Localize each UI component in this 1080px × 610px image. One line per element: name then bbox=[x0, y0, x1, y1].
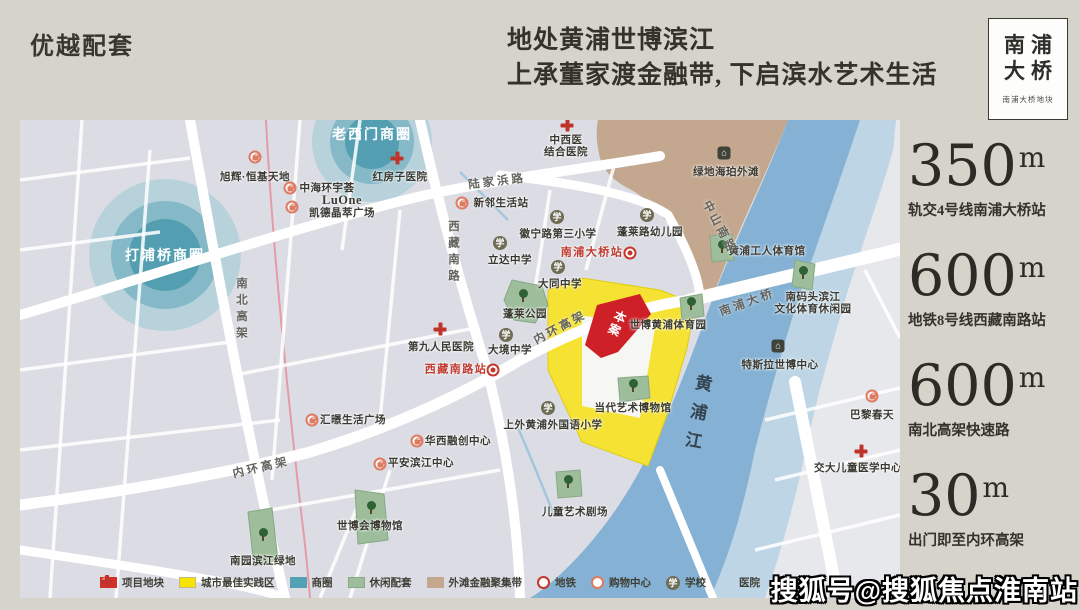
park-icon bbox=[257, 528, 269, 542]
poi-label: 儿童艺术剧场 bbox=[542, 506, 608, 518]
hospital-icon bbox=[561, 120, 574, 132]
poi-name: 立达中学 bbox=[488, 254, 532, 266]
stat-block: 600m地铁8号线西藏南路站 bbox=[908, 248, 1080, 333]
brand-subtitle: 南浦大桥地块 bbox=[989, 94, 1067, 105]
map-legend: 项目地块城市最佳实践区商圈休闲配套外滩金融聚集带地铁购物中心学学校医院⌂住宅区 bbox=[100, 575, 825, 590]
poi-label: LuOne凯德晶萃广场 bbox=[309, 193, 375, 219]
road-label: 南北高架 bbox=[233, 277, 249, 343]
metro-icon bbox=[487, 364, 500, 377]
poi-label: 世博黄浦体育园 bbox=[630, 319, 707, 331]
shopping-icon bbox=[411, 435, 424, 448]
school-icon: 学 bbox=[499, 328, 513, 342]
poi-label: 南园滨江绿地 bbox=[230, 555, 296, 567]
legend-label: 项目地块 bbox=[122, 575, 164, 590]
stat-value: 600m bbox=[908, 358, 1080, 415]
shopping-icon bbox=[306, 414, 319, 427]
stat-block: 30m出门即至内环高架 bbox=[908, 468, 1080, 553]
poi-name: 中西医 bbox=[544, 134, 588, 146]
stat-label: 南北高架快速路 bbox=[908, 419, 1080, 440]
poi-label: 蓬莱公园 bbox=[503, 308, 547, 320]
legend-item: 学学校 bbox=[666, 575, 706, 590]
poi-label: 南码头滨江文化体育休闲园 bbox=[775, 291, 852, 315]
poi-name: 蓬莱路幼儿园 bbox=[617, 226, 683, 238]
stat-unit: m bbox=[1019, 251, 1046, 284]
park-icon bbox=[365, 501, 377, 515]
legend-item: 医院 bbox=[721, 575, 760, 590]
poi-name: 红房子医院 bbox=[373, 171, 428, 183]
poi-name: 平安滨江中心 bbox=[388, 457, 454, 469]
shopping-icon bbox=[286, 201, 299, 214]
poi-label: 徽宁路第三小学 bbox=[520, 228, 597, 240]
poi-name: 南园滨江绿地 bbox=[230, 555, 296, 567]
park-icon bbox=[562, 475, 574, 489]
legend-label: 购物中心 bbox=[609, 575, 651, 590]
poi-name: 南浦大桥站 bbox=[561, 247, 624, 260]
legend-metro-icon bbox=[537, 576, 550, 589]
headline-line2: 上承董家渡金融带, 下启滨水艺术生活 bbox=[507, 59, 938, 94]
poi-name: 特斯拉世博中心 bbox=[742, 359, 819, 371]
poi-label: 新邻生活站 bbox=[474, 197, 529, 209]
legend-practice-icon bbox=[179, 577, 196, 588]
poi-name: 第九人民医院 bbox=[408, 341, 474, 353]
legend-shopping-icon bbox=[591, 576, 604, 589]
shopping-icon bbox=[866, 390, 879, 403]
stat-block: 600m南北高架快速路 bbox=[908, 358, 1080, 443]
poi-label: 中西医结合医院 bbox=[544, 134, 588, 158]
legend-school-icon: 学 bbox=[666, 576, 680, 590]
stat-value: 600m bbox=[908, 248, 1080, 305]
poi-label: 汇暻生活广场 bbox=[320, 414, 386, 426]
stat-number: 600 bbox=[908, 243, 1017, 309]
poi-label: 巴黎春天 bbox=[850, 409, 894, 421]
school-icon: 学 bbox=[493, 236, 507, 250]
school-icon: 学 bbox=[550, 210, 564, 224]
brand-name-line2: 大桥 bbox=[995, 58, 1067, 84]
poi-label: 交大儿童医学中心 bbox=[814, 462, 900, 474]
legend-label: 休闲配套 bbox=[370, 575, 412, 590]
poi-name: 当代艺术博物馆 bbox=[595, 402, 672, 414]
legend-label: 城市最佳实践区 bbox=[201, 575, 275, 590]
brand-box: 南浦 大桥 南浦大桥地块 bbox=[988, 18, 1068, 120]
stat-unit: m bbox=[983, 471, 1010, 504]
poi-label: 旭辉·恒基天地 bbox=[220, 171, 290, 183]
park-icon bbox=[627, 379, 639, 393]
brand-name-line1: 南浦 bbox=[995, 32, 1067, 58]
stat-value: 30m bbox=[908, 468, 1080, 525]
school-icon: 学 bbox=[551, 260, 565, 274]
map: 旭辉·恒基天地中海环宇荟LuOne凯德晶萃广场新邻生活站汇暻生活广场华西融创中心… bbox=[20, 120, 900, 598]
poi-label: 蓬莱路幼儿园 bbox=[617, 226, 683, 238]
road-label: 西藏南路 bbox=[445, 220, 461, 286]
poi-name: 绿地海珀外滩 bbox=[693, 166, 759, 178]
stat-number: 30 bbox=[908, 463, 981, 529]
poi-name: 西藏南路站 bbox=[425, 364, 488, 377]
poi-name: 上外黄浦外国语小学 bbox=[504, 419, 603, 431]
poi-label: 大同中学 bbox=[538, 278, 582, 290]
poi-name: 交大儿童医学中心 bbox=[814, 462, 900, 474]
poi-label: 南浦大桥站 bbox=[561, 247, 624, 260]
poi-name-line2: 结合医院 bbox=[544, 146, 588, 158]
shopping-icon bbox=[456, 197, 469, 210]
poi-name: 华西融创中心 bbox=[425, 435, 491, 447]
poi-label: 第九人民医院 bbox=[408, 341, 474, 353]
metro-icon bbox=[624, 247, 637, 260]
poi-label: 西藏南路站 bbox=[425, 364, 488, 377]
poi-name: 汇暻生活广场 bbox=[320, 414, 386, 426]
page-title: 优越配套 bbox=[30, 26, 134, 61]
legend-bund-icon bbox=[427, 577, 444, 588]
headline-line1: 地处黄浦世博滨江 bbox=[507, 24, 938, 59]
legend-item: 外滩金融聚集带 bbox=[427, 575, 523, 590]
road-label: 南浦大桥 bbox=[717, 285, 777, 320]
hospital-icon bbox=[855, 445, 868, 458]
poi-name: 大同中学 bbox=[538, 278, 582, 290]
poi-name: 巴黎春天 bbox=[850, 409, 894, 421]
legend-item: 商圈 bbox=[290, 575, 333, 590]
school-icon: 学 bbox=[541, 401, 555, 415]
legend-item: 休闲配套 bbox=[348, 575, 412, 590]
poi-name: LuOne bbox=[309, 193, 375, 207]
park-icon bbox=[685, 297, 697, 311]
building-icon: ⌂ bbox=[718, 147, 731, 160]
stat-unit: m bbox=[1019, 361, 1046, 394]
legend-label: 外滩金融聚集带 bbox=[449, 575, 523, 590]
stat-label: 轨交4号线南浦大桥站 bbox=[908, 199, 1080, 220]
legend-item: 购物中心 bbox=[591, 575, 651, 590]
poi-label: 世博会博物馆 bbox=[337, 520, 403, 532]
shopping-icon bbox=[284, 182, 297, 195]
project-plot-label: 本案 bbox=[604, 308, 631, 340]
poi-label: 红房子医院 bbox=[373, 171, 428, 183]
poi-name: 大境中学 bbox=[488, 344, 532, 356]
road-label: 陆家浜路 bbox=[467, 170, 527, 193]
stat-label: 地铁8号线西藏南路站 bbox=[908, 309, 1080, 330]
poi-name: 儿童艺术剧场 bbox=[542, 506, 608, 518]
watermark: 搜狐号@搜狐焦点淮南站 bbox=[771, 569, 1078, 608]
park-icon bbox=[797, 266, 809, 280]
shopping-icon bbox=[374, 458, 387, 471]
stat-number: 350 bbox=[908, 133, 1017, 199]
poi-name: 世博黄浦体育园 bbox=[630, 319, 707, 331]
poi-label: 绿地海珀外滩 bbox=[693, 166, 759, 178]
poi-name: 新邻生活站 bbox=[474, 197, 529, 209]
legend-label: 学校 bbox=[685, 575, 706, 590]
stats-column: 350m轨交4号线南浦大桥站600m地铁8号线西藏南路站600m南北高架快速路3… bbox=[908, 138, 1080, 553]
legend-label: 医院 bbox=[739, 575, 760, 590]
poi-label: 立达中学 bbox=[488, 254, 532, 266]
legend-label: 商圈 bbox=[312, 575, 333, 590]
poi-layer: 旭辉·恒基天地中海环宇荟LuOne凯德晶萃广场新邻生活站汇暻生活广场华西融创中心… bbox=[20, 120, 900, 598]
stat-block: 350m轨交4号线南浦大桥站 bbox=[908, 138, 1080, 223]
legend-item: 地铁 bbox=[537, 575, 576, 590]
road-label: 内环高架 bbox=[231, 453, 291, 482]
stat-number: 600 bbox=[908, 353, 1017, 419]
poi-label: 当代艺术博物馆 bbox=[595, 402, 672, 414]
legend-hospital-icon bbox=[721, 576, 734, 589]
hospital-icon bbox=[391, 152, 404, 165]
poi-name-line2: 文化体育休闲园 bbox=[775, 303, 852, 315]
poi-name: 旭辉·恒基天地 bbox=[220, 171, 290, 183]
poi-label: 大境中学 bbox=[488, 344, 532, 356]
poi-label: 上外黄浦外国语小学 bbox=[504, 419, 603, 431]
poi-name: 蓬莱公园 bbox=[503, 308, 547, 320]
legend-item: 城市最佳实践区 bbox=[179, 575, 275, 590]
poi-name: 徽宁路第三小学 bbox=[520, 228, 597, 240]
shopping-icon bbox=[249, 151, 262, 164]
legend-leisure-icon bbox=[348, 577, 365, 588]
poi-name-line2: 凯德晶萃广场 bbox=[309, 207, 375, 219]
stat-unit: m bbox=[1019, 141, 1046, 174]
legend-circle-icon bbox=[290, 577, 307, 588]
legend-label: 地铁 bbox=[555, 575, 576, 590]
park-icon bbox=[517, 289, 529, 303]
poi-name: 世博会博物馆 bbox=[337, 520, 403, 532]
poi-label: 平安滨江中心 bbox=[388, 457, 454, 469]
road-label: 黄浦江 bbox=[676, 372, 716, 462]
poi-name: 南码头滨江 bbox=[775, 291, 852, 303]
business-circle-label: 老西门商圈 bbox=[332, 124, 412, 144]
stat-value: 350m bbox=[908, 138, 1080, 195]
business-circle-label: 打浦桥商圈 bbox=[125, 245, 205, 265]
building-icon: ⌂ bbox=[772, 340, 785, 353]
poi-label: 华西融创中心 bbox=[425, 435, 491, 447]
headline: 地处黄浦世博滨江 上承董家渡金融带, 下启滨水艺术生活 bbox=[507, 24, 938, 93]
page: 优越配套 地处黄浦世博滨江 上承董家渡金融带, 下启滨水艺术生活 南浦 大桥 南… bbox=[0, 0, 1080, 610]
poi-label: 特斯拉世博中心 bbox=[742, 359, 819, 371]
stat-label: 出门即至内环高架 bbox=[908, 529, 1080, 550]
school-icon: 学 bbox=[640, 208, 654, 222]
hospital-icon bbox=[434, 323, 447, 336]
